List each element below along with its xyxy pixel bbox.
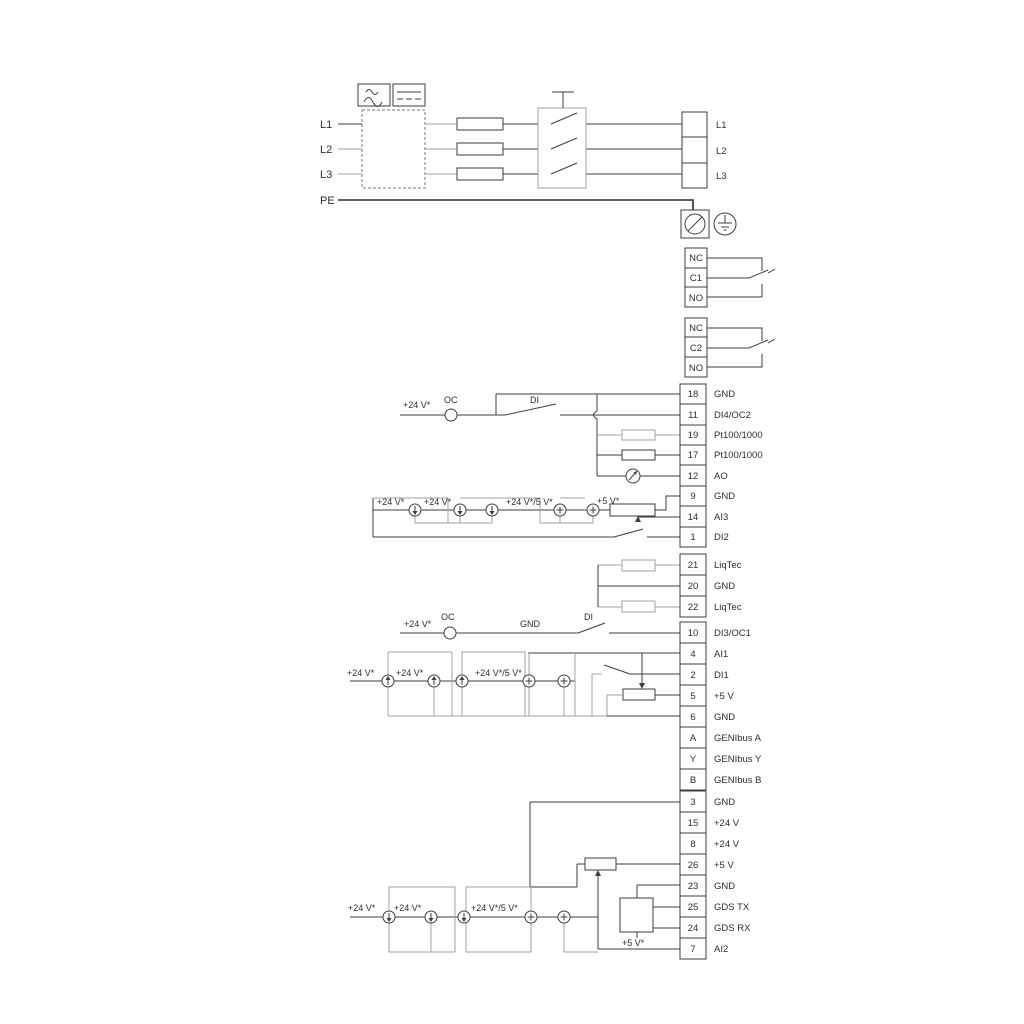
ann-di4-di: DI <box>530 395 539 405</box>
io3-2-no: 8 <box>690 839 695 850</box>
ann-di3-gnd: GND <box>520 619 541 629</box>
ann-di4-oc: OC <box>444 395 458 405</box>
io1-5-label: GND <box>714 491 735 502</box>
io1-2-no: 19 <box>688 430 699 441</box>
io1-2-label: Pt100/1000 <box>714 430 763 441</box>
io2-0-no: 10 <box>688 628 699 639</box>
relay1-section: NC C1 NO <box>685 248 775 307</box>
liqtec-section: 21 20 22 LiqTec GND LiqTec <box>598 554 742 617</box>
io1-0-label: GND <box>714 389 735 400</box>
pt100-resistor-19 <box>622 430 655 440</box>
ann-ai1-24v5v: +24 V*/5 V* <box>475 668 522 678</box>
io1-3-label: Pt100/1000 <box>714 450 763 461</box>
io1-6-label: AI3 <box>714 512 728 523</box>
ai2-wiper-arrow <box>595 870 601 876</box>
relay1-nc: NC <box>689 253 703 264</box>
dc-icon <box>393 84 425 106</box>
label-l2-in: L2 <box>320 144 332 156</box>
io1-7-no: 1 <box>690 532 695 543</box>
io2-0-label: DI3/OC1 <box>714 628 751 639</box>
oc-circle-di4 <box>445 409 457 421</box>
io1-3-no: 17 <box>688 450 699 461</box>
main-switch-box <box>538 108 586 188</box>
label-l1-out: L1 <box>716 120 727 131</box>
wiring-diagram: L1 L2 L3 PE L1 L2 L3 NC C1 NO NC C2 NO <box>0 0 1024 1024</box>
sensor-bus <box>594 394 598 476</box>
io2-wiring: +24 V* OC GND DI +24 V* +24 V* +24 V*/5 … <box>347 612 680 716</box>
mains-power-section: L1 L2 L3 PE L1 L2 L3 <box>320 84 736 238</box>
io2-6-no: Y <box>690 754 697 765</box>
io2-7-no: B <box>690 775 696 786</box>
relay2-no: NO <box>689 363 703 374</box>
relay1-no: NO <box>689 293 703 304</box>
ai1-potentiometer <box>623 689 655 700</box>
io3-terminal-strip: 3 15 8 26 23 25 24 7 GND +24 V +24 V +5 … <box>680 791 751 959</box>
ann-di3-24v: +24 V* <box>404 619 432 629</box>
io3-3-no: 26 <box>688 860 699 871</box>
relay1-com: C1 <box>690 273 702 284</box>
relay2-com: C2 <box>690 343 702 354</box>
io3-0-label: GND <box>714 797 735 808</box>
io1-1-label: DI4/OC2 <box>714 410 751 421</box>
ann-di3-di: DI <box>584 612 593 622</box>
ann-ai1-24v-a: +24 V* <box>347 668 375 678</box>
label-l2-out: L2 <box>716 146 727 157</box>
io2-5-no: A <box>690 733 697 744</box>
io2-6-label: GENIbus Y <box>714 754 762 765</box>
ai2-potentiometer <box>585 858 616 870</box>
io3-6-label: GDS RX <box>714 923 751 934</box>
io2-2-label: DI1 <box>714 670 729 681</box>
ann-ai3-24v-a: +24 V* <box>377 497 405 507</box>
io3-7-label: AI2 <box>714 944 728 955</box>
io2-1-label: AI1 <box>714 649 728 660</box>
label-l1-in: L1 <box>320 119 332 131</box>
io3-0-no: 3 <box>690 797 695 808</box>
label-l3-in: L3 <box>320 169 332 181</box>
ann-ai3-24v-b: +24 V* <box>424 497 452 507</box>
io1-5-no: 9 <box>690 491 695 502</box>
io2-7-label: GENIbus B <box>714 775 762 786</box>
io2-5-label: GENIbus A <box>714 733 762 744</box>
relay2-nc: NC <box>689 323 703 334</box>
io2-3-no: 5 <box>690 691 695 702</box>
ann-ai2-24v5v: +24 V*/5 V* <box>471 903 518 913</box>
fuse-l2 <box>457 143 503 155</box>
io1-terminal-strip: 18 11 19 17 12 9 14 1 GND DI4/OC2 Pt100/… <box>680 384 763 547</box>
ann-ai3-24v5v: +24 V*/5 V* <box>506 497 553 507</box>
io1-6-no: 14 <box>688 512 699 523</box>
ann-ai2-24v-a: +24 V* <box>348 903 376 913</box>
liqtec-resistor-21 <box>622 560 655 571</box>
io3-wiring: +24 V* +24 V* +24 V*/5 V* +5 V* <box>348 802 680 952</box>
io1-1-no: 11 <box>688 410 698 421</box>
pt100-resistor-17 <box>622 450 655 460</box>
io1-7-label: DI2 <box>714 532 729 543</box>
io2-3-label: +5 V <box>714 691 734 702</box>
liqtec-1-label: GND <box>714 581 735 592</box>
io3-1-label: +24 V <box>714 818 740 829</box>
liqtec-1-no: 20 <box>688 581 699 592</box>
io2-4-no: 6 <box>690 712 695 723</box>
io3-4-label: GND <box>714 881 735 892</box>
liqtec-2-no: 22 <box>688 602 699 613</box>
liqtec-0-label: LiqTec <box>714 560 742 571</box>
pe-wire <box>338 200 693 210</box>
fuse-l3 <box>457 168 503 180</box>
ai1-wiper-arrow <box>639 683 645 689</box>
switch-handle <box>552 92 574 108</box>
mains-terminal-block <box>682 112 707 188</box>
io1-4-label: AO <box>714 471 728 482</box>
io3-6-no: 24 <box>688 923 699 934</box>
io1-4-no: 12 <box>688 471 699 482</box>
io1-0-no: 18 <box>688 389 699 400</box>
ann-di3-oc: OC <box>441 612 455 622</box>
label-pe: PE <box>320 195 335 207</box>
liqtec-0-no: 21 <box>688 560 699 571</box>
io2-4-label: GND <box>714 712 735 723</box>
gds-sensor-box <box>620 898 653 932</box>
io3-1-no: 15 <box>688 818 699 829</box>
relay2-contact <box>707 328 775 367</box>
io1-wiring: +24 V* OC DI +24 V* +24 V* +24 V*/5 V* +… <box>373 394 680 537</box>
io3-5-no: 25 <box>688 902 699 913</box>
io2-terminal-strip: 10 4 2 5 6 A Y B DI3/OC1 AI1 DI1 +5 V GN… <box>680 622 762 790</box>
io2-1-no: 4 <box>690 649 695 660</box>
ac-icon <box>358 84 390 106</box>
relay1-contact <box>707 258 775 297</box>
io2-2-no: 2 <box>690 670 695 681</box>
label-l3-out: L3 <box>716 171 727 182</box>
ann-ai2-5v: +5 V* <box>622 938 645 948</box>
liqtec-2-label: LiqTec <box>714 602 742 613</box>
oc-circle-di3 <box>444 627 456 639</box>
io3-2-label: +24 V <box>714 839 740 850</box>
ann-di4-24v: +24 V* <box>403 400 431 410</box>
fuse-l1 <box>457 118 503 130</box>
emc-filter-box <box>362 110 425 188</box>
ann-ai2-24v-b: +24 V* <box>394 903 422 913</box>
io3-5-label: GDS TX <box>714 902 750 913</box>
io3-4-no: 23 <box>688 881 699 892</box>
wiring-diagram-page: L1 L2 L3 PE L1 L2 L3 NC C1 NO NC C2 NO <box>0 0 1024 1024</box>
liqtec-resistor-22 <box>622 601 655 612</box>
ann-ai1-24v-b: +24 V* <box>396 668 424 678</box>
ann-ai3-5v: +5 V* <box>597 496 620 506</box>
relay2-section: NC C2 NO <box>685 318 775 377</box>
io3-3-label: +5 V <box>714 860 734 871</box>
io3-7-no: 7 <box>690 944 695 955</box>
